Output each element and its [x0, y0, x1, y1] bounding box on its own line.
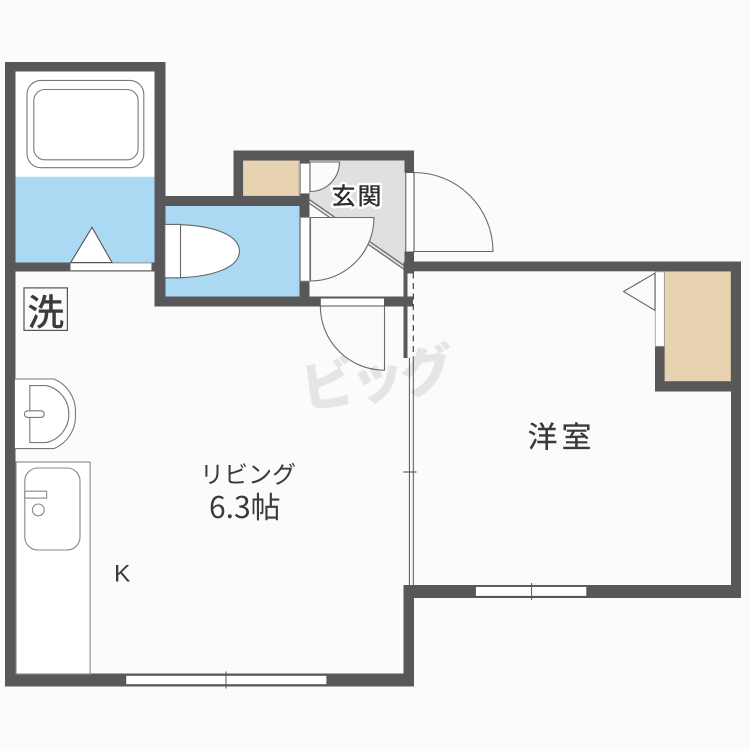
svg-text:K: K — [114, 560, 131, 587]
